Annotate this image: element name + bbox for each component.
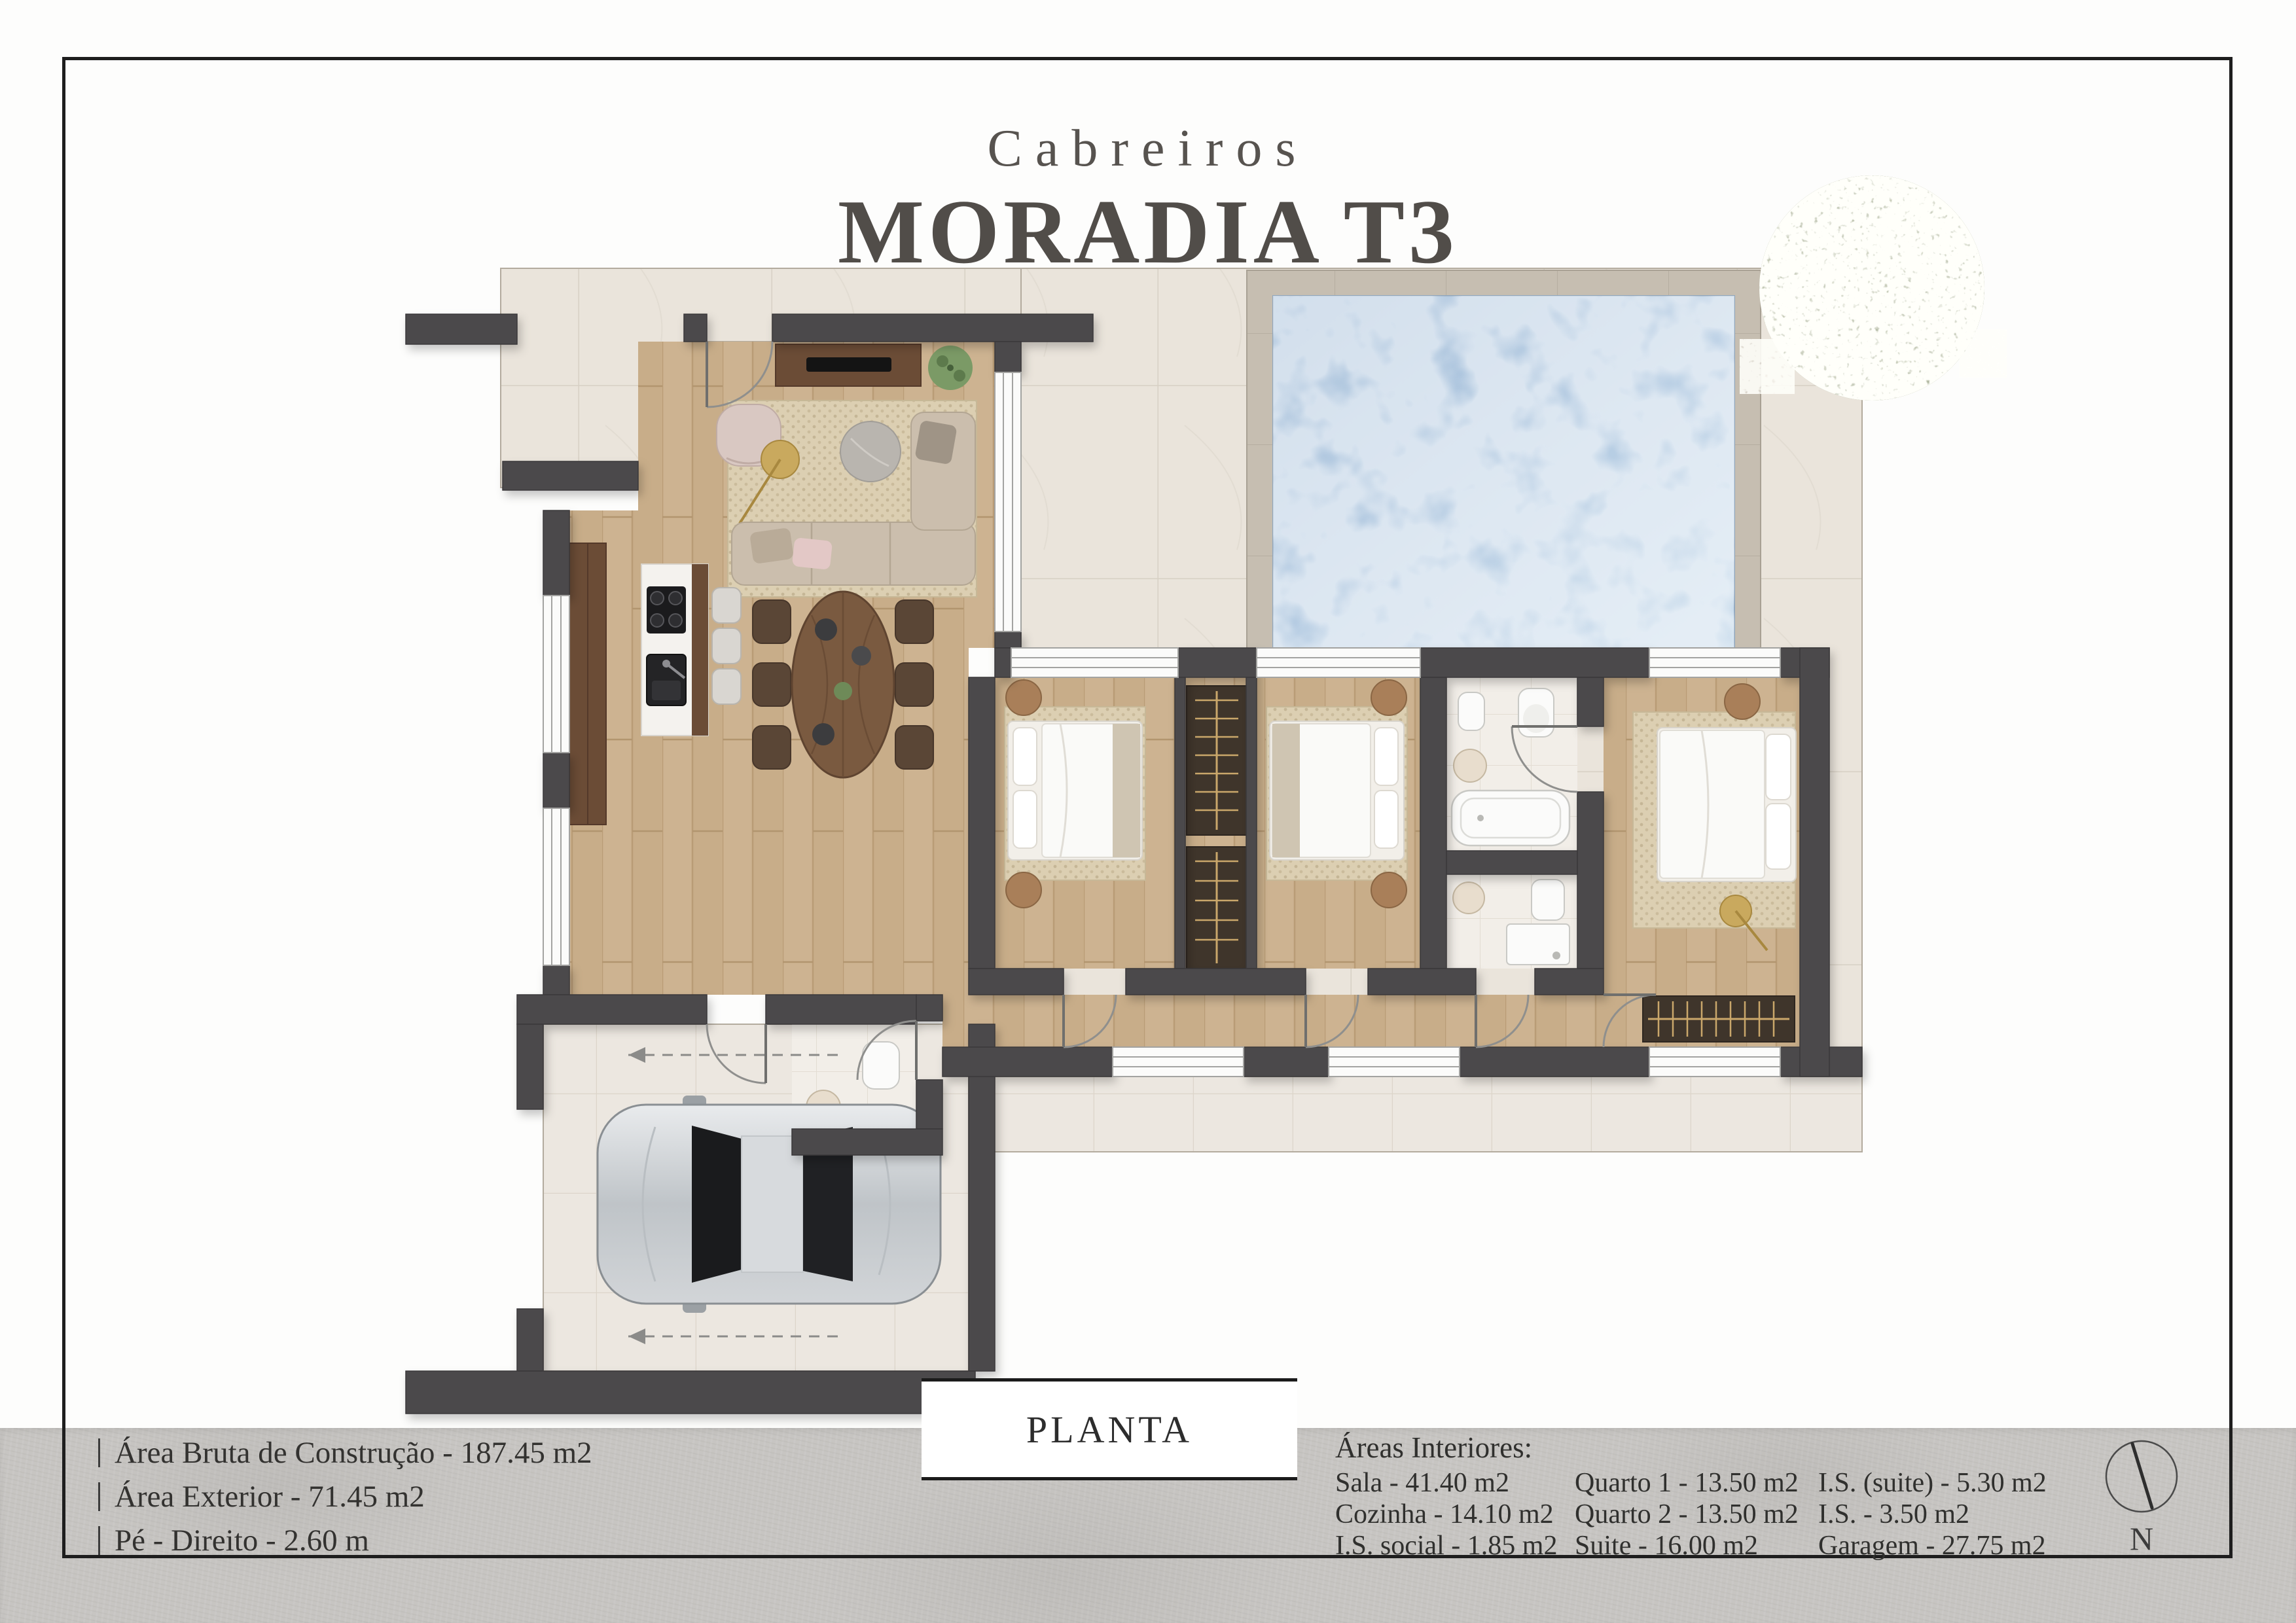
burner [669, 614, 682, 627]
title-block: Cabreiros MORADIA T3 [0, 0, 2296, 278]
construction-metrics: Área Bruta de Construção - 187.45 m2 Áre… [98, 1431, 592, 1562]
bed-throw [1272, 724, 1300, 857]
pillow [1013, 791, 1037, 848]
pillow [1766, 804, 1791, 869]
wall-room-south [1126, 969, 1306, 995]
wall-north-row [1178, 648, 1257, 677]
dining-chair [895, 600, 933, 643]
wall-garage-west [517, 1309, 543, 1371]
dining-set [753, 592, 933, 777]
plan-title: PLANTA [1026, 1408, 1193, 1452]
window-bedroom2 [1257, 648, 1420, 677]
bar-stool [712, 669, 741, 704]
wall-room-south [969, 969, 1064, 995]
bar-stool [712, 628, 741, 664]
sink-bowl [652, 681, 681, 700]
sofa-pillow-pink [792, 537, 833, 570]
compass-needle [2132, 1444, 2152, 1508]
wall-living-north [772, 314, 1093, 342]
metric-row: Área Exterior - 71.45 m2 [98, 1474, 592, 1518]
car-windshield [692, 1126, 742, 1283]
burner [651, 614, 664, 627]
brand-title: Cabreiros [0, 119, 2296, 179]
separator-bar [98, 1526, 100, 1555]
coffee-table [840, 421, 901, 482]
area-item-is: I.S. - 3.50 m2 [1818, 1499, 2047, 1530]
plant-leaf [954, 370, 965, 382]
interior-areas-block: Áreas Interiores: Sala - 41.40 m2 Cozinh… [1335, 1431, 1532, 1470]
plan-title-box: PLANTA [922, 1378, 1297, 1480]
duvet [1660, 730, 1765, 878]
car-roof [742, 1136, 803, 1272]
side-table [1006, 680, 1041, 715]
wall-west [543, 753, 569, 808]
area-item-is-social: I.S. social - 1.85 m2 [1335, 1530, 1557, 1561]
wall-closet [1175, 677, 1185, 969]
wall-room-south [1535, 969, 1604, 995]
window-south-3 [1649, 1047, 1780, 1077]
wall-garden-stub [406, 314, 517, 344]
window-south-1 [1113, 1047, 1244, 1077]
wall-bedroom2-bath [1420, 677, 1446, 969]
window-kitchen-2 [543, 808, 569, 965]
built-in-wardrobes [1187, 686, 1247, 969]
window-bedroom1 [1011, 648, 1178, 677]
side-table [1371, 872, 1407, 908]
toilet-bowl [1523, 704, 1549, 733]
bar-stool [712, 588, 741, 623]
tree-sprig [1966, 336, 2000, 370]
island-wood-edge [692, 564, 708, 736]
area-item-is-suite: I.S. (suite) - 5.30 m2 [1818, 1467, 2047, 1499]
side-table [1725, 684, 1760, 719]
bedroom1-furniture [1005, 680, 1145, 908]
window-suite [1649, 648, 1780, 677]
wall [995, 632, 1021, 648]
dining-chair [753, 663, 791, 706]
wall-room-south [1368, 969, 1476, 995]
side-table [1371, 680, 1407, 715]
wall [995, 342, 1021, 372]
area-item-cozinha: Cozinha - 14.10 m2 [1335, 1499, 1557, 1530]
wall-step [503, 461, 638, 490]
pool-water-ripples [1273, 296, 1734, 654]
areas-column-2: Quarto 1 - 13.50 m2 Quarto 2 - 13.50 m2 … [1575, 1467, 1799, 1561]
pillow [1013, 728, 1037, 785]
pillow [1766, 734, 1791, 800]
metric-row: Área Bruta de Construção - 187.45 m2 [98, 1431, 592, 1474]
area-item-suite: Suite - 16.00 m2 [1575, 1530, 1799, 1561]
bathtub-drain [1477, 815, 1484, 821]
wall-wc-south [792, 1129, 942, 1155]
burner [669, 592, 682, 605]
plate [812, 723, 834, 745]
burner [651, 592, 664, 605]
wall-west [543, 510, 569, 596]
areas-column-1: Sala - 41.40 m2 Cozinha - 14.10 m2 I.S. … [1335, 1467, 1557, 1561]
separator-bar [98, 1438, 100, 1467]
dining-chair [895, 663, 933, 706]
plant-leaf [937, 355, 948, 367]
wall-exterior-south [1244, 1047, 1329, 1077]
window-living-slider [995, 372, 1021, 632]
wall [684, 314, 707, 342]
wall-suite-east [1800, 648, 1829, 1077]
wall-garage-west [517, 1024, 543, 1109]
swimming-pool [1247, 270, 1761, 681]
pillow [1374, 791, 1398, 848]
wall-north-row [995, 648, 1011, 677]
sofa-pillow-gray [914, 420, 958, 465]
wall-living-bedroom1 [969, 677, 995, 969]
dining-chair [753, 600, 791, 643]
toilet [1532, 880, 1564, 920]
wall-garage-north [766, 995, 916, 1024]
dining-chair [895, 726, 933, 769]
pillow [1374, 728, 1398, 785]
ceiling-height-label: Pé - Direito - 2.60 m [115, 1523, 369, 1558]
separator-bar [98, 1482, 100, 1511]
wall-north-row [1420, 648, 1649, 677]
floor-plan-sheet: Cabreiros MORADIA T3 [0, 0, 2296, 1623]
dining-chair [753, 726, 791, 769]
compass: N [2106, 1441, 2177, 1557]
exterior-area-label: Área Exterior - 71.45 m2 [115, 1479, 425, 1514]
area-item-garagem: Garagem - 27.75 m2 [1818, 1530, 2047, 1561]
tv [806, 357, 891, 372]
plate [852, 646, 871, 666]
wall-exterior-south [1460, 1047, 1649, 1077]
table-plant [834, 682, 852, 700]
bedroom2-furniture [1266, 680, 1407, 908]
shower-tray [1507, 924, 1570, 965]
wall-west [543, 965, 569, 995]
shower-drain [1552, 952, 1560, 959]
wall-garage-north [517, 995, 707, 1024]
wall-bath-suite [1577, 792, 1604, 969]
wall-wc-east [916, 1080, 942, 1129]
area-item-quarto1: Quarto 1 - 13.50 m2 [1575, 1467, 1799, 1499]
area-item-quarto2: Quarto 2 - 13.50 m2 [1575, 1499, 1799, 1530]
washbasin [1453, 882, 1484, 914]
wall-closet [1246, 677, 1257, 969]
south-walkway [942, 1077, 1862, 1152]
side-table [1006, 872, 1041, 908]
wall-wc-east [916, 995, 942, 1021]
wall-exterior-south [942, 1047, 1113, 1077]
wall-bath-suite [1577, 677, 1604, 726]
compass-north-label: N [2130, 1520, 2153, 1557]
page-title: MORADIA T3 [0, 187, 2296, 278]
window-south-2 [1329, 1047, 1460, 1077]
window-kitchen-1 [543, 596, 569, 753]
tree-sprig [1748, 347, 1787, 386]
area-item-sala: Sala - 41.40 m2 [1335, 1467, 1557, 1499]
plant-center [947, 365, 954, 371]
wc-toilet [863, 1042, 899, 1089]
gross-area-label: Área Bruta de Construção - 187.45 m2 [115, 1435, 592, 1471]
wall-bath-divider [1446, 851, 1577, 874]
areas-column-3: I.S. (suite) - 5.30 m2 I.S. - 3.50 m2 Ga… [1818, 1467, 2047, 1561]
sofa-pillow [749, 527, 794, 564]
bidet [1458, 692, 1484, 730]
metric-row: Pé - Direito - 2.60 m [98, 1518, 592, 1562]
washbasin [1454, 749, 1486, 782]
car-top-view [598, 1096, 941, 1313]
bed-throw [1113, 724, 1140, 857]
plate [815, 618, 837, 641]
wall-garage-south [406, 1371, 975, 1414]
interior-areas-header: Áreas Interiores: [1335, 1431, 1532, 1465]
